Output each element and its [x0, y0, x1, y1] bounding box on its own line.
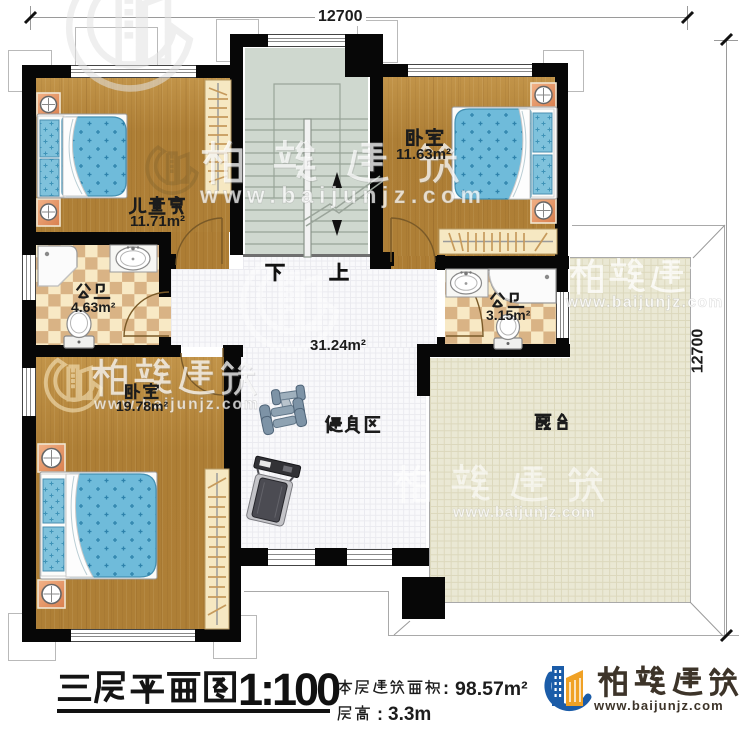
svg-text:www.baijunjz.com: www.baijunjz.com: [199, 182, 487, 208]
svg-text:www.baijunjz.com: www.baijunjz.com: [452, 504, 595, 521]
svg-text:www.baijunjz.com: www.baijunjz.com: [565, 294, 724, 311]
